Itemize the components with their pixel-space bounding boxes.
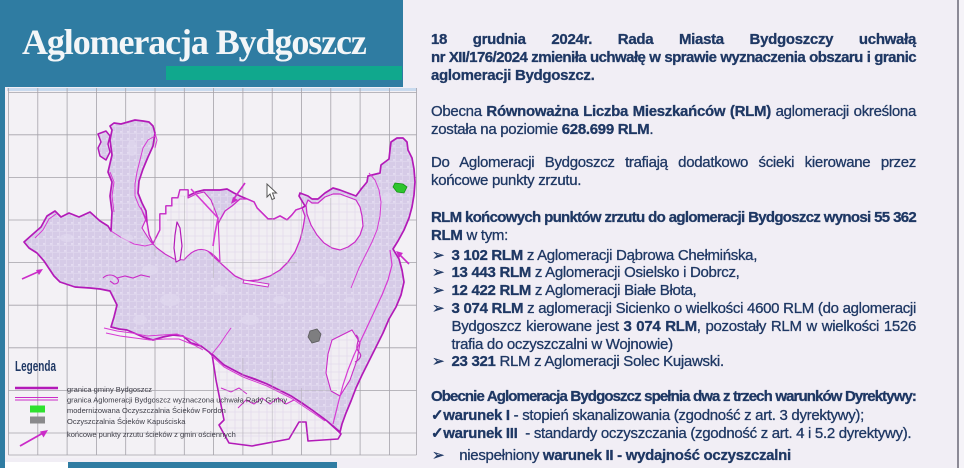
svg-text:Oczyszczalnia Ścieków Kapuścis: Oczyszczalnia Ścieków Kapuściska [67,417,186,426]
svg-text:końcowe punkty zrzutu ścieków: końcowe punkty zrzutu ścieków z gmin ośc… [67,430,236,439]
svg-text:granica Aglomeracji Bydgoszcz: granica Aglomeracji Bydgoszcz wyznaczona… [67,396,287,405]
svg-text:granica gminy Bydgoszcz: granica gminy Bydgoszcz [67,385,152,394]
svg-text:modernizowana Oczyszczalnia Śc: modernizowana Oczyszczalnia Ścieków Ford… [67,406,226,415]
svg-text:Legenda: Legenda [15,359,57,375]
